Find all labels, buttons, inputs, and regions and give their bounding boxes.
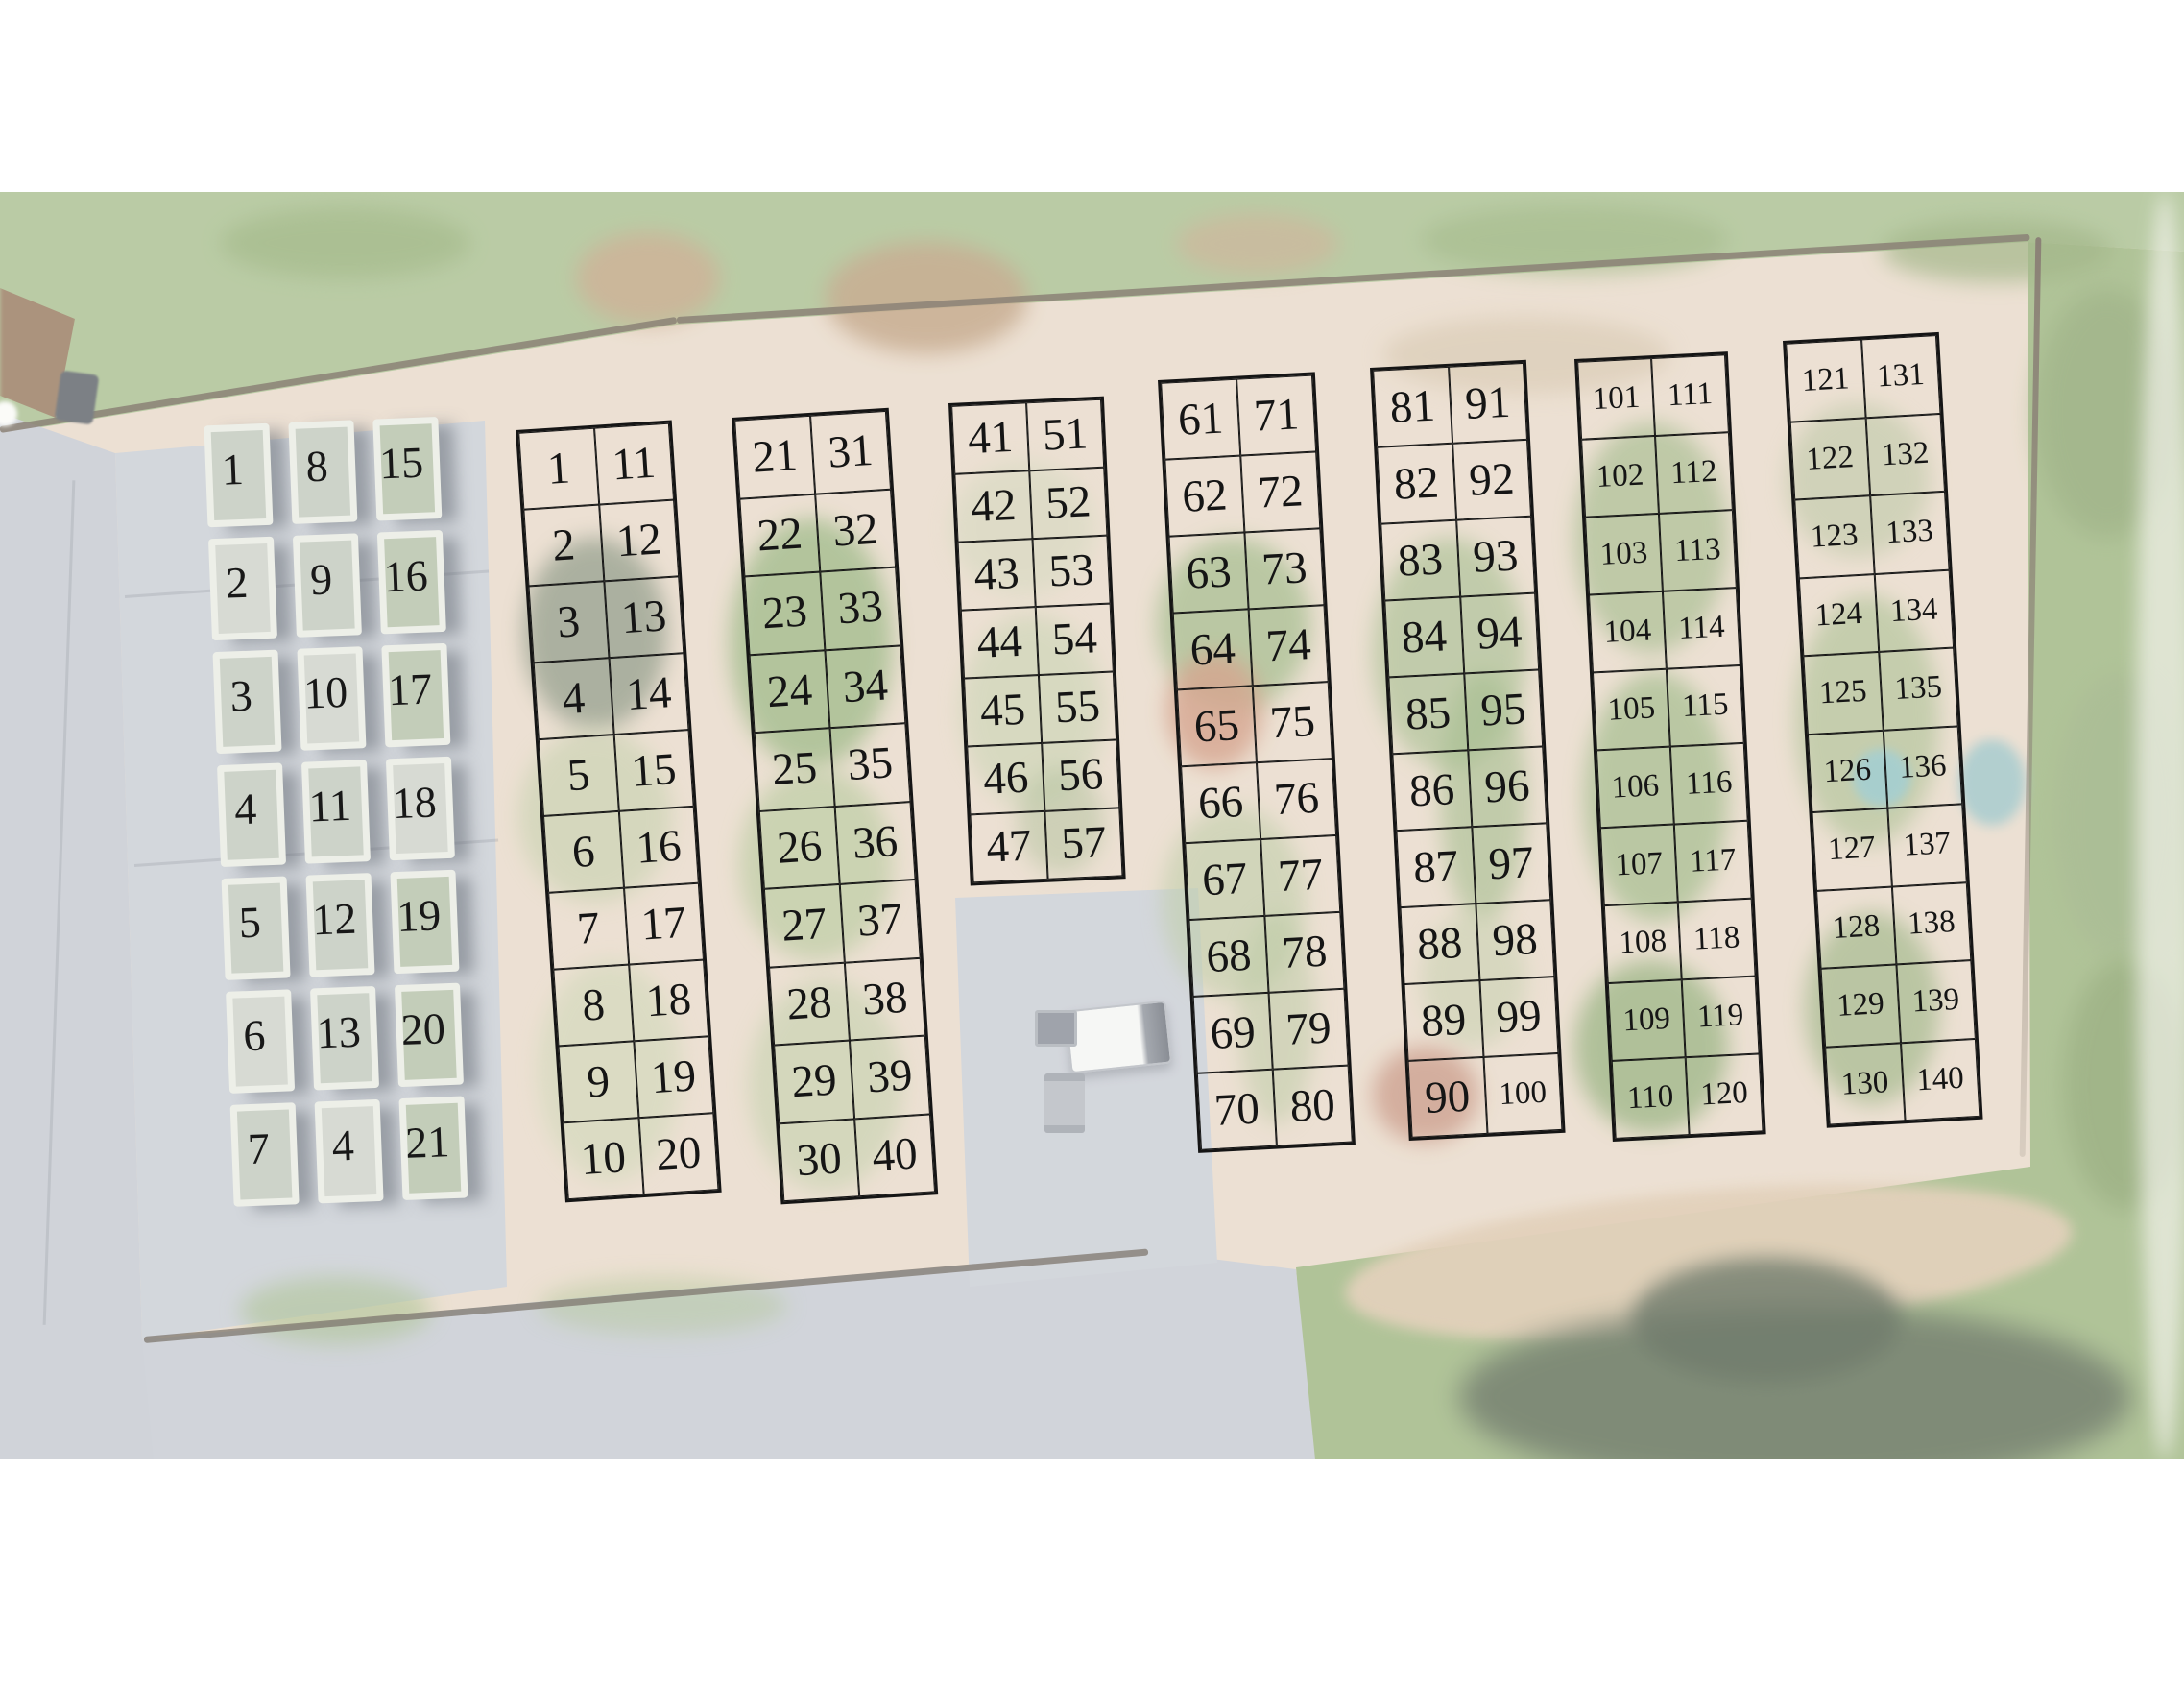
plot-cell: 34 <box>825 645 905 728</box>
plot-cell: 85 <box>1388 673 1467 754</box>
plot-cell: 31 <box>810 411 891 494</box>
plot-cell: 46 <box>967 743 1044 814</box>
plot-cell: 47 <box>970 811 1047 882</box>
dirt-patch <box>576 232 720 325</box>
bed-number: 15 <box>357 405 445 521</box>
raised-bed-slot: 12 <box>290 861 378 977</box>
plot-cell: 125 <box>1803 652 1883 735</box>
raised-bed-slot: 9 <box>276 521 365 638</box>
plot-cell: 119 <box>1682 977 1760 1058</box>
plot-cell: 33 <box>820 567 900 650</box>
plot-cell: 8 <box>553 965 633 1047</box>
bed-number: 11 <box>286 748 374 864</box>
plot-cell: 69 <box>1193 993 1273 1073</box>
plot-cell: 102 <box>1581 436 1659 518</box>
plot-cell: 76 <box>1257 759 1336 839</box>
plot-cell: 123 <box>1794 495 1874 578</box>
plot-cell: 77 <box>1260 835 1340 916</box>
bed-number: 6 <box>210 977 299 1094</box>
plot-cell: 104 <box>1589 591 1667 673</box>
bed-number: 18 <box>370 745 458 861</box>
plot-cell: 52 <box>1029 468 1107 539</box>
plot-cell: 19 <box>634 1036 713 1118</box>
plot-cell: 15 <box>613 730 693 811</box>
raised-bed-slot: 10 <box>281 635 370 751</box>
plot-cell: 129 <box>1821 964 1901 1047</box>
bed-number: 3 <box>197 638 285 754</box>
storage-bin <box>1044 1073 1085 1133</box>
plot-cell: 82 <box>1377 444 1455 524</box>
plot-cell: 78 <box>1264 912 1344 993</box>
vegetation-patch <box>1882 219 2112 282</box>
raised-beds-group: 1 8 15 2 9 16 3 10 17 4 <box>188 405 472 1208</box>
bed-number: 1 <box>188 412 276 528</box>
plot-cell: 70 <box>1197 1070 1277 1150</box>
plot-cell: 7 <box>548 888 628 970</box>
plot-cell: 45 <box>964 675 1042 746</box>
plot-cell: 75 <box>1253 682 1332 762</box>
plot-cell: 62 <box>1164 456 1244 537</box>
plot-cell: 37 <box>840 880 921 962</box>
plot-cell: 44 <box>961 607 1039 678</box>
plot-cell: 100 <box>1483 1053 1562 1134</box>
raised-bed-slot: 4 <box>202 751 290 867</box>
plot-cell: 55 <box>1039 671 1116 742</box>
plot-cell: 16 <box>618 807 698 888</box>
plot-cell: 63 <box>1169 532 1249 613</box>
bed-number: 7 <box>214 1091 302 1207</box>
raised-bed-slot: 6 <box>210 977 299 1094</box>
plot-cell: 21 <box>734 416 815 498</box>
plot-cell: 22 <box>739 494 820 576</box>
vegetation-patch <box>221 207 470 278</box>
raised-bed-slot: 16 <box>361 518 449 635</box>
plot-cell: 92 <box>1452 440 1531 520</box>
bed-number: 21 <box>383 1084 471 1200</box>
bed-number: 4 <box>202 751 290 867</box>
plot-cell: 32 <box>815 489 896 571</box>
raised-bed-slot: 8 <box>273 408 361 524</box>
plot-cell: 111 <box>1651 354 1729 436</box>
plot-cell: 110 <box>1612 1057 1690 1139</box>
plot-cell: 126 <box>1808 730 1887 812</box>
raised-bed-slot: 13 <box>295 975 383 1091</box>
plot-cell: 118 <box>1678 899 1756 980</box>
plot-cell: 79 <box>1269 989 1349 1070</box>
plot-cell: 41 <box>951 402 1029 473</box>
raised-bed-slot: 1 <box>188 412 276 528</box>
plot-cell: 23 <box>744 572 825 655</box>
plot-cell: 72 <box>1240 451 1320 532</box>
plot-cell: 86 <box>1392 750 1471 831</box>
dirt-patch <box>1176 213 1339 275</box>
plot-cell: 2 <box>523 505 603 587</box>
plot-cell: 20 <box>638 1113 718 1194</box>
plot-cell: 103 <box>1585 514 1663 595</box>
raised-bed-slot: 5 <box>205 864 294 980</box>
plot-cell: 5 <box>539 735 618 816</box>
bed-number: 20 <box>379 971 468 1087</box>
plot-cell: 61 <box>1161 379 1240 460</box>
garden-plot-map: 1 8 15 2 9 16 3 10 17 4 <box>0 0 2184 1688</box>
plot-cell: 9 <box>558 1041 637 1122</box>
plot-cell: 30 <box>779 1119 859 1201</box>
plot-cell: 131 <box>1861 335 1941 418</box>
plot-cell: 97 <box>1472 823 1550 904</box>
plot-cell: 17 <box>623 883 703 965</box>
plot-cell: 99 <box>1479 977 1558 1057</box>
plot-cell: 94 <box>1460 593 1539 674</box>
plot-cell: 54 <box>1036 604 1114 675</box>
plot-cell: 18 <box>629 960 708 1042</box>
plot-cell: 24 <box>750 650 830 733</box>
bed-number: 12 <box>290 861 378 977</box>
plot-cell: 36 <box>835 802 916 884</box>
plot-cell: 101 <box>1577 358 1655 440</box>
plot-cell: 13 <box>604 576 684 658</box>
plot-cell: 56 <box>1042 739 1119 810</box>
plot-cell: 12 <box>599 500 679 582</box>
plot-cell: 135 <box>1879 648 1958 731</box>
plot-cell: 93 <box>1456 517 1535 597</box>
plot-cell: 137 <box>1887 804 1967 886</box>
plot-cell: 35 <box>829 723 910 806</box>
plot-cell: 105 <box>1593 669 1670 751</box>
plot-cell: 3 <box>529 581 609 663</box>
plot-cell: 115 <box>1667 665 1744 747</box>
vegetation-patch <box>240 1277 432 1344</box>
bed-number: 17 <box>366 632 454 748</box>
plot-cell: 116 <box>1670 743 1748 825</box>
plot-cell: 4 <box>534 658 613 739</box>
plot-cell: 68 <box>1188 916 1268 997</box>
plot-cell: 66 <box>1181 762 1260 843</box>
plot-cell: 139 <box>1896 960 1976 1043</box>
white-van <box>1065 1001 1172 1074</box>
plot-cell: 138 <box>1891 882 1971 965</box>
plot-cell: 71 <box>1236 375 1316 456</box>
plot-cell: 57 <box>1044 808 1122 879</box>
plot-cell: 65 <box>1177 686 1257 766</box>
bed-number: 8 <box>273 408 361 524</box>
plot-cell: 121 <box>1786 339 1865 422</box>
plot-cell: 113 <box>1659 510 1737 591</box>
raised-bed-slot: 3 <box>197 638 285 754</box>
plot-cell: 88 <box>1400 904 1478 984</box>
plot-cell: 95 <box>1464 669 1543 750</box>
tree-mass <box>1632 1258 1901 1383</box>
raised-bed-slot: 19 <box>374 858 463 975</box>
plot-cell: 96 <box>1468 746 1547 827</box>
plot-cell: 26 <box>759 807 840 889</box>
plot-cell: 133 <box>1870 492 1950 574</box>
tarp-teal <box>1958 739 2026 826</box>
plot-cell: 74 <box>1249 605 1329 686</box>
plot-cell: 114 <box>1663 588 1740 669</box>
plot-cell: 132 <box>1865 413 1945 495</box>
plot-cell: 127 <box>1812 808 1891 891</box>
plot-cell: 117 <box>1674 821 1752 903</box>
plot-cell: 90 <box>1408 1057 1487 1138</box>
plot-cell: 128 <box>1816 886 1896 969</box>
raised-bed-slot: 21 <box>383 1084 471 1200</box>
plot-cell: 27 <box>764 884 845 967</box>
raised-bed-slot: 17 <box>366 632 454 748</box>
plot-cell: 106 <box>1596 747 1674 829</box>
plot-cell: 107 <box>1600 825 1678 906</box>
plot-cell: 38 <box>845 957 925 1040</box>
plot-cell: 42 <box>954 470 1032 542</box>
plot-cell: 112 <box>1655 432 1733 514</box>
plot-cell: 83 <box>1380 520 1459 601</box>
bed-number: 2 <box>193 525 281 641</box>
plot-cell: 29 <box>774 1041 854 1123</box>
parked-car <box>55 370 100 424</box>
bed-number: 19 <box>374 858 463 975</box>
storage-bin <box>1035 1010 1077 1047</box>
plot-cell: 84 <box>1384 597 1463 678</box>
plot-cell: 120 <box>1686 1053 1764 1135</box>
bed-number: 10 <box>281 635 370 751</box>
raised-bed-slot: 2 <box>193 525 281 641</box>
plot-cell: 51 <box>1026 399 1104 470</box>
plot-cell: 53 <box>1032 536 1110 607</box>
bed-number: 13 <box>295 975 383 1091</box>
plot-cell: 1 <box>518 428 598 510</box>
plot-cell: 43 <box>958 539 1036 610</box>
plot-cell: 10 <box>564 1118 643 1199</box>
plot-cell: 14 <box>609 653 688 735</box>
plot-cell: 67 <box>1185 839 1264 920</box>
plot-cell: 89 <box>1404 980 1483 1061</box>
plot-cell: 80 <box>1273 1066 1353 1146</box>
plot-cell: 98 <box>1476 900 1554 980</box>
plot-cell: 73 <box>1244 528 1324 609</box>
plot-cell: 25 <box>755 728 835 810</box>
plot-cell: 136 <box>1883 726 1962 808</box>
plot-cell: 40 <box>854 1114 935 1196</box>
plot-cell: 130 <box>1825 1043 1905 1125</box>
bed-number: 9 <box>276 521 365 638</box>
plot-cell: 6 <box>543 811 623 893</box>
raised-bed-slot: 18 <box>370 745 458 861</box>
plot-cell: 122 <box>1790 418 1870 500</box>
plot-cell: 91 <box>1449 363 1527 444</box>
raised-bed-slot: 4 <box>299 1088 387 1204</box>
plot-cell: 140 <box>1900 1038 1980 1121</box>
plot-grid-41-57: 4151425243534454455546564757 <box>948 397 1126 886</box>
raised-bed-slot: 7 <box>214 1091 302 1207</box>
plot-cell: 81 <box>1373 367 1452 447</box>
plot-cell: 134 <box>1874 569 1954 652</box>
raised-bed-slot: 11 <box>286 748 374 864</box>
plot-cell: 87 <box>1396 827 1475 907</box>
plot-cell: 108 <box>1604 902 1682 983</box>
bed-number: 5 <box>205 864 294 980</box>
raised-bed-slot: 15 <box>357 405 445 521</box>
plot-cell: 64 <box>1173 609 1253 689</box>
plot-cell: 109 <box>1608 979 1686 1061</box>
plot-cell: 39 <box>850 1036 930 1119</box>
raised-bed-slot: 20 <box>379 971 468 1087</box>
bed-number: 16 <box>361 518 449 635</box>
bed-number: 4 <box>299 1088 387 1204</box>
plot-cell: 11 <box>594 423 674 505</box>
plot-cell: 28 <box>769 962 850 1045</box>
plot-cell: 124 <box>1799 574 1879 657</box>
